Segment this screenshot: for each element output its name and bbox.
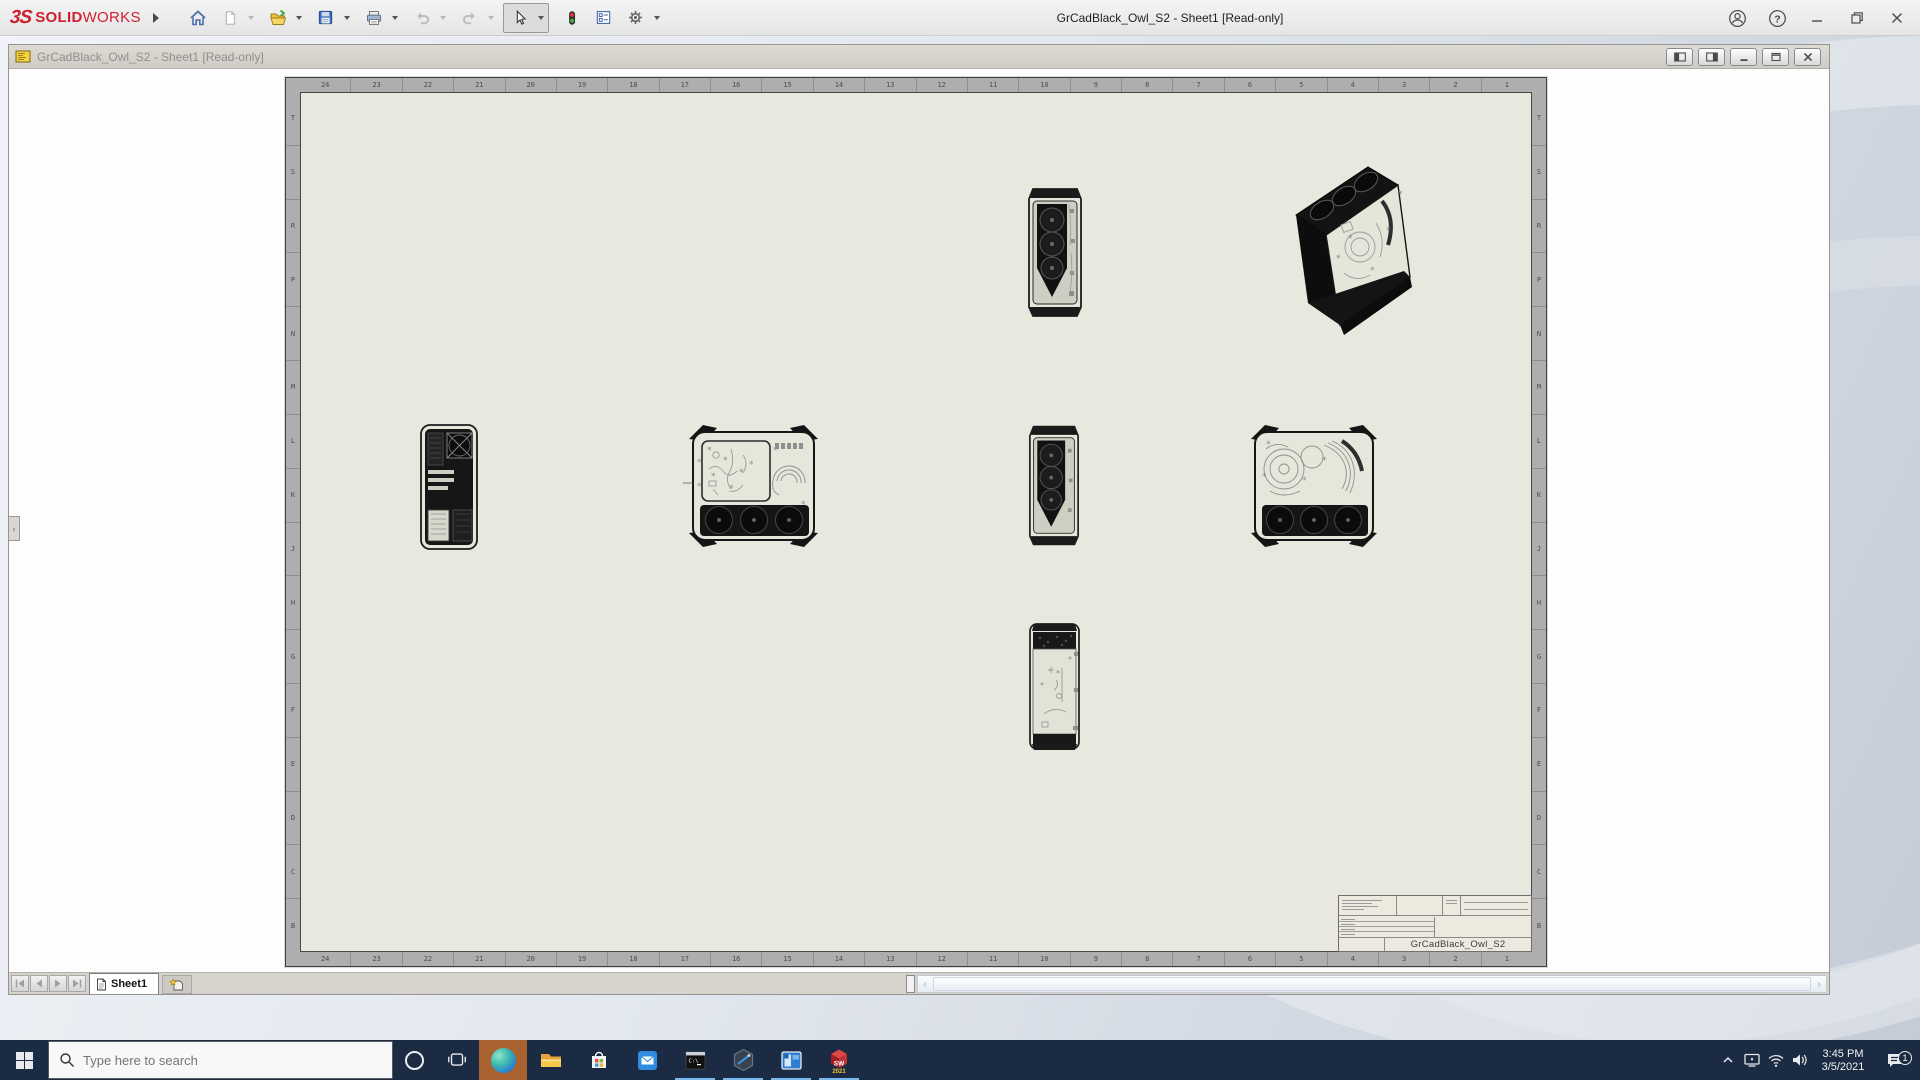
system-tray: 3:45 PM 3/5/2021 1 — [1716, 1040, 1920, 1080]
zone-label: J — [1532, 522, 1546, 576]
zone-label: 13 — [864, 78, 915, 92]
file-explorer-icon — [538, 1048, 564, 1072]
drawing-field[interactable]: ***** — [300, 92, 1532, 952]
zone-label: H — [286, 575, 300, 629]
tab-sheet1[interactable]: Sheet1 — [89, 973, 159, 994]
task-view-icon — [446, 1049, 468, 1071]
sw-label: SW — [834, 1060, 845, 1067]
zone-label: J — [286, 522, 300, 576]
front-top-view-drawing — [1025, 183, 1085, 322]
zone-label: 12 — [916, 952, 967, 966]
notification-badge: 1 — [1898, 1051, 1912, 1065]
zone-label: 15 — [761, 78, 812, 92]
zone-label: P — [1532, 252, 1546, 306]
next-sheet-icon — [52, 978, 64, 989]
svg-text:*: * — [1266, 440, 1271, 450]
taskbar: C:\ SW 2021 — [0, 1040, 1920, 1080]
start-button[interactable] — [0, 1040, 48, 1080]
zone-label: 8 — [1121, 952, 1172, 966]
zone-label: 2 — [1429, 952, 1480, 966]
command-prompt-icon: C:\ — [683, 1049, 708, 1072]
redo-caret[interactable] — [488, 16, 494, 20]
zone-label: D — [286, 791, 300, 845]
zone-label: E — [286, 737, 300, 791]
open-folder-icon — [268, 8, 288, 28]
doc-minimize-button[interactable] — [1730, 48, 1757, 66]
zone-label: 18 — [607, 78, 658, 92]
title-block-cell — [1461, 896, 1531, 915]
zone-label: 1 — [1481, 952, 1532, 966]
zone-label: F — [286, 683, 300, 737]
zone-label: F — [1532, 683, 1546, 737]
zone-label: 14 — [813, 78, 864, 92]
stoplight-icon — [563, 8, 581, 28]
zone-label: 15 — [761, 952, 812, 966]
drawing-view-rear[interactable] — [417, 420, 481, 554]
zone-label: B — [1532, 898, 1546, 952]
zone-label: 8 — [1121, 78, 1172, 92]
taskbar-store-button[interactable] — [575, 1040, 623, 1080]
svg-text:*: * — [711, 472, 716, 482]
zone-label: R — [1532, 199, 1546, 253]
redo-icon — [460, 8, 480, 28]
account-button[interactable] — [1720, 3, 1754, 33]
horizontal-scrollbar[interactable]: ‹ › — [917, 975, 1827, 993]
doc-close-button[interactable] — [1794, 48, 1821, 66]
zone-label: G — [1532, 629, 1546, 683]
taskbar-search[interactable] — [48, 1041, 393, 1079]
zone-label: R — [286, 199, 300, 253]
save-icon — [316, 8, 335, 27]
zone-label: E — [1532, 737, 1546, 791]
zone-label: 3 — [1378, 952, 1429, 966]
zone-label: 16 — [710, 78, 761, 92]
svg-text:*: * — [739, 468, 744, 478]
solidworks-cube-icon: SW 2021 — [827, 1047, 851, 1074]
account-icon — [1727, 8, 1748, 29]
title-block-cell — [1339, 896, 1397, 915]
svg-text:*: * — [1040, 681, 1044, 690]
clock-time: 3:45 PM — [1812, 1048, 1874, 1061]
svg-text:*: * — [1068, 655, 1072, 664]
windows-logo-icon — [16, 1052, 33, 1069]
zone-label: 14 — [813, 952, 864, 966]
svg-text:*: * — [707, 446, 712, 456]
zone-label: 9 — [1070, 78, 1121, 92]
zone-label: N — [1532, 306, 1546, 360]
tab-area-splitter[interactable] — [906, 975, 915, 993]
quick-access-toolbar — [183, 3, 667, 33]
zone-label: S — [286, 145, 300, 199]
chevron-up-icon — [1721, 1053, 1735, 1067]
zone-label: 9 — [1070, 952, 1121, 966]
svg-text:*: * — [697, 458, 702, 468]
scrollbar-thumb[interactable] — [933, 977, 1811, 991]
zone-label: 5 — [1275, 78, 1326, 92]
zone-label: 19 — [556, 78, 607, 92]
zone-label: 2 — [1429, 78, 1480, 92]
print-button[interactable] — [359, 4, 389, 32]
document-titlebar[interactable]: GrCadBlack_Owl_S2 - Sheet1 [Read-only] — [9, 45, 1829, 69]
add-sheet-tab[interactable] — [162, 975, 192, 994]
zone-label: T — [286, 92, 300, 145]
new-document-button[interactable] — [215, 4, 245, 32]
zone-label: 21 — [453, 952, 504, 966]
drawing-view-front-top[interactable] — [1025, 183, 1085, 322]
drawing-viewport[interactable]: ‹ 24232221201918171615141312111098765432… — [9, 69, 1829, 972]
last-sheet-button[interactable] — [68, 975, 86, 992]
document-title: GrCadBlack_Owl_S2 - Sheet1 [Read-only] — [37, 50, 264, 64]
sheet-tab-bar: Sheet1 ‹ › — [9, 972, 1829, 994]
previous-sheet-button[interactable] — [30, 975, 48, 992]
zone-label: 16 — [710, 952, 761, 966]
zone-label: C — [286, 844, 300, 898]
zone-label: 18 — [607, 952, 658, 966]
window-title: GrCadBlack_Owl_S2 - Sheet1 [Read-only] — [620, 0, 1720, 36]
cortana-icon — [405, 1051, 424, 1070]
blue-window-app-icon — [779, 1049, 804, 1072]
taskpane-collapse-tab[interactable]: ‹ — [9, 516, 20, 541]
drawing-document-icon — [15, 49, 31, 64]
drawing-view-bottom[interactable]: *** — [1026, 618, 1083, 755]
zone-label: 7 — [1172, 952, 1223, 966]
first-sheet-icon — [14, 978, 26, 989]
next-sheet-button[interactable] — [49, 975, 67, 992]
display-pane-right-button[interactable] — [1698, 48, 1725, 66]
save-caret[interactable] — [344, 16, 350, 20]
zone-label: 20 — [505, 78, 556, 92]
zone-label: 6 — [1224, 952, 1275, 966]
redo-button[interactable] — [455, 4, 485, 32]
zone-label: 1 — [1481, 78, 1532, 92]
sheet-page-icon — [96, 978, 107, 991]
title-block-row3: GrCadBlack_Owl_S2 — [1339, 937, 1531, 951]
title-block: GrCadBlack_Owl_S2 — [1338, 895, 1532, 952]
edge-icon — [491, 1048, 516, 1073]
document-window: GrCadBlack_Owl_S2 - Sheet1 [Read-only] ‹… — [8, 44, 1830, 995]
task-view-button[interactable] — [435, 1040, 479, 1080]
svg-text:*: * — [1262, 472, 1267, 482]
first-sheet-button[interactable] — [11, 975, 29, 992]
pane-left-icon — [1672, 50, 1688, 64]
store-icon — [587, 1048, 611, 1072]
taskbar-solidworks-button[interactable]: SW 2021 — [815, 1040, 863, 1080]
tray-wifi-button[interactable] — [1764, 1040, 1788, 1080]
zone-label: 5 — [1275, 952, 1326, 966]
doc-close-icon — [1800, 50, 1816, 64]
desktop: 3S SOLIDWORKS — [0, 0, 1920, 1080]
svg-text:*: * — [723, 456, 728, 466]
cortana-button[interactable] — [393, 1040, 435, 1080]
tray-volume-button[interactable] — [1788, 1040, 1812, 1080]
zone-label: P — [286, 252, 300, 306]
zone-label: 21 — [453, 78, 504, 92]
zone-label: 13 — [864, 952, 915, 966]
drawing-sheet-paper[interactable]: 242322212019181716151413121110987654321 … — [285, 77, 1547, 967]
svg-text:*: * — [1302, 476, 1307, 486]
solidworks-app-icon: SW 2021 — [827, 1047, 851, 1074]
taskbar-edge-button[interactable] — [479, 1040, 527, 1080]
add-sheet-icon — [169, 978, 185, 991]
zone-label: 10 — [1018, 78, 1069, 92]
title-block-row1 — [1339, 896, 1531, 916]
print-icon — [364, 8, 384, 28]
new-document-icon — [221, 9, 239, 27]
svg-text:*: * — [1322, 456, 1327, 466]
left-side-view-drawing: ********** — [683, 419, 824, 553]
title-block-left-rows — [1339, 917, 1435, 938]
taskbar-blue-window-app-button[interactable] — [767, 1040, 815, 1080]
save-button[interactable] — [311, 4, 341, 32]
zone-label: 7 — [1172, 78, 1223, 92]
last-sheet-icon — [71, 978, 83, 989]
zone-label: 24 — [300, 952, 350, 966]
svg-text:*: * — [1386, 226, 1391, 236]
select-tool-active — [503, 3, 549, 33]
document-window-controls — [1666, 48, 1823, 66]
zone-label: S — [1532, 145, 1546, 199]
zone-label: D — [1532, 791, 1546, 845]
wifi-icon — [1767, 1053, 1785, 1068]
hexagon-app-icon — [731, 1047, 756, 1073]
zone-label: 11 — [967, 952, 1018, 966]
drawing-view-isometric[interactable]: ***** — [1278, 153, 1415, 344]
zone-label: 23 — [350, 78, 401, 92]
zone-strip-top: 242322212019181716151413121110987654321 — [300, 78, 1532, 92]
svg-text:C:\: C:\ — [688, 1058, 698, 1064]
scroll-right-arrow[interactable]: › — [1812, 976, 1826, 992]
restore-icon — [1849, 10, 1865, 26]
action-center-button[interactable]: 1 — [1874, 1050, 1916, 1070]
select-tool-caret[interactable] — [538, 16, 544, 20]
menu-flyout-arrow-icon[interactable] — [153, 13, 159, 23]
svg-text:*: * — [1348, 234, 1353, 244]
taskbar-mail-button[interactable] — [623, 1040, 671, 1080]
sheet-tab-label: Sheet1 — [111, 978, 147, 990]
zone-strip-bottom: 242322212019181716151413121110987654321 — [300, 952, 1532, 966]
mail-icon — [635, 1048, 660, 1073]
zone-label: 19 — [556, 952, 607, 966]
app-titlebar: 3S SOLIDWORKS — [0, 0, 1920, 36]
zone-label: N — [286, 306, 300, 360]
zone-label: L — [286, 414, 300, 468]
cast-icon — [1743, 1052, 1761, 1068]
svg-text:*: * — [1056, 669, 1060, 678]
title-block-row2 — [1339, 917, 1531, 938]
zone-label: H — [1532, 575, 1546, 629]
minimize-icon — [1809, 10, 1825, 26]
zone-label: 17 — [659, 78, 710, 92]
zone-label: 6 — [1224, 78, 1275, 92]
volume-icon — [1791, 1052, 1809, 1068]
display-pane-left-button[interactable] — [1666, 48, 1693, 66]
svg-text:*: * — [749, 460, 754, 470]
zone-label: K — [1532, 468, 1546, 522]
zone-label: 4 — [1327, 78, 1378, 92]
zone-label: 20 — [505, 952, 556, 966]
scroll-left-arrow[interactable]: ‹ — [918, 976, 932, 992]
zone-label: 10 — [1018, 952, 1069, 966]
undo-icon — [412, 8, 432, 28]
open-button[interactable] — [263, 4, 293, 32]
zone-label: 3 — [1378, 78, 1429, 92]
search-icon — [59, 1052, 75, 1068]
zone-label: 11 — [967, 78, 1018, 92]
title-block-cell — [1397, 896, 1443, 915]
isometric-view-drawing: ***** — [1278, 153, 1415, 344]
zone-label: G — [286, 629, 300, 683]
zone-label: T — [1532, 92, 1546, 145]
zone-label: 22 — [402, 78, 453, 92]
home-icon — [188, 8, 208, 28]
brand-works: WORKS — [83, 9, 141, 26]
zone-label: K — [286, 468, 300, 522]
zone-label: 4 — [1327, 952, 1378, 966]
drawing-view-front-center[interactable] — [1025, 421, 1083, 550]
bottom-view-drawing: *** — [1026, 618, 1083, 755]
minimize-button[interactable] — [1800, 3, 1834, 33]
tray-cast-button[interactable] — [1740, 1040, 1764, 1080]
zone-label: 17 — [659, 952, 710, 966]
drawing-view-side-left[interactable]: ********** — [683, 419, 824, 553]
sheet-properties-button[interactable] — [589, 4, 619, 32]
restore-button[interactable] — [1840, 3, 1874, 33]
undo-button[interactable] — [407, 4, 437, 32]
zone-label: 23 — [350, 952, 401, 966]
zone-strip-right: TSRPNMLKJHGFEDCB — [1532, 92, 1546, 952]
taskbar-hexagon-app-button[interactable] — [719, 1040, 767, 1080]
front-center-view-drawing — [1025, 421, 1083, 550]
sheet-properties-icon — [594, 8, 613, 27]
brand-solid: SOLID — [35, 9, 82, 26]
doc-restore-icon — [1768, 50, 1784, 64]
zone-label: 22 — [402, 952, 453, 966]
svg-text:*: * — [729, 484, 734, 494]
solidworks-logo: 3S SOLIDWORKS — [0, 7, 141, 29]
zone-label: M — [286, 360, 300, 414]
svg-text:*: * — [1370, 266, 1375, 276]
rear-view-drawing — [417, 420, 481, 554]
close-button[interactable] — [1880, 3, 1914, 33]
close-icon — [1889, 10, 1905, 26]
rebuild-button[interactable] — [557, 4, 587, 32]
clock-date: 3/5/2021 — [1812, 1061, 1874, 1074]
doc-minimize-icon — [1736, 50, 1752, 64]
svg-text:*: * — [1398, 190, 1403, 200]
title-block-title: GrCadBlack_Owl_S2 — [1385, 938, 1531, 951]
previous-sheet-icon — [33, 978, 45, 989]
zone-label: 12 — [916, 78, 967, 92]
title-block-cell — [1443, 896, 1461, 915]
new-document-caret[interactable] — [248, 16, 254, 20]
pane-right-icon — [1704, 50, 1720, 64]
taskbar-terminal-button[interactable]: C:\ — [671, 1040, 719, 1080]
select-cursor-icon — [511, 9, 529, 27]
select-tool-button[interactable] — [505, 4, 535, 32]
print-caret[interactable] — [392, 16, 398, 20]
open-caret[interactable] — [296, 16, 302, 20]
sheet-navigation — [11, 975, 86, 992]
svg-text:*: * — [697, 482, 702, 492]
title-block-cell — [1435, 917, 1531, 938]
svg-text:*: * — [1336, 254, 1341, 264]
title-block-cell — [1339, 938, 1385, 951]
zone-label: M — [1532, 360, 1546, 414]
zone-strip-left: TSRPNMLKJHGFEDCB — [286, 92, 300, 952]
taskbar-file-explorer-button[interactable] — [527, 1040, 575, 1080]
help-button[interactable]: ? — [1760, 3, 1794, 33]
doc-restore-button[interactable] — [1762, 48, 1789, 66]
tray-chevron-button[interactable] — [1716, 1040, 1740, 1080]
home-button[interactable] — [183, 4, 213, 32]
taskbar-clock[interactable]: 3:45 PM 3/5/2021 — [1812, 1047, 1874, 1074]
window-controls: ? — [1720, 0, 1914, 36]
sw-year-label: 2021 — [832, 1069, 846, 1074]
right-side-view-drawing: ***** — [1246, 419, 1382, 553]
drawing-view-side-right[interactable]: ***** — [1246, 419, 1382, 553]
undo-caret[interactable] — [440, 16, 446, 20]
zone-label: B — [286, 898, 300, 952]
search-input[interactable] — [83, 1053, 353, 1068]
zone-label: 24 — [300, 78, 350, 92]
zone-label: C — [1532, 844, 1546, 898]
svg-text:?: ? — [1774, 13, 1780, 25]
help-icon: ? — [1767, 8, 1788, 29]
3ds-logo-icon: 3S — [9, 7, 33, 29]
zone-label: L — [1532, 414, 1546, 468]
